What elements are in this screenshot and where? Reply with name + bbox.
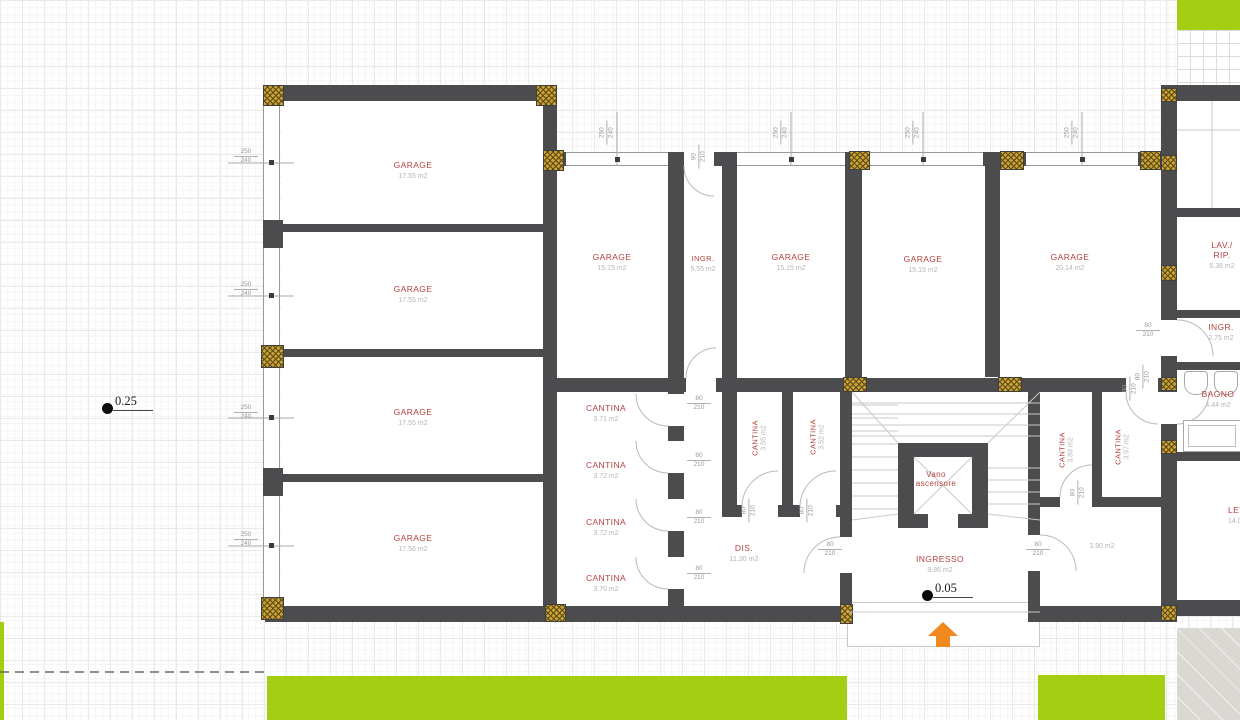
room-label-garage: GARAGE15.15 m2 — [904, 254, 943, 274]
room-label-lav-rip: LAV./RIP.5.38 m2 — [1209, 240, 1234, 270]
dimension-label: 80210 — [687, 452, 711, 469]
dimension-label: 80210 — [740, 499, 757, 523]
room-label-garage: GARAGE15.15 m2 — [772, 252, 811, 272]
room-label-ingresso: INGR.2.75 m2 — [1208, 322, 1234, 342]
dim-tick — [269, 293, 274, 298]
dimension-label: 80210 — [1134, 365, 1151, 389]
room-label-cantina: CANTINA3.89 m2 — [1058, 432, 1075, 468]
dim-tick — [1080, 157, 1085, 162]
room-label-ingresso: INGR.5.55 m2 — [690, 254, 715, 273]
room-label-bagno: BAGNO4.44 m2 — [1202, 389, 1235, 409]
room-label-cantina: CANTINA3.97 m2 — [1114, 429, 1131, 465]
dimension-label: 250240 — [904, 121, 921, 145]
level-marker-dot — [922, 590, 933, 601]
room-label-garage: GARAGE20.14 m2 — [1051, 252, 1090, 272]
dimension-label: 250240 — [234, 531, 258, 548]
room-label-letto: LETTO14.07 m2 — [1228, 505, 1240, 525]
linework-layer — [0, 0, 1240, 720]
door-arc — [636, 557, 668, 589]
dim-tick — [789, 157, 794, 162]
dim-tick — [269, 160, 274, 165]
entrance-arrow-icon — [928, 622, 958, 636]
room-label-garage: GARAGE17.55 m2 — [394, 407, 433, 427]
room-label-cantina: CANTINA3.72 m2 — [586, 517, 626, 537]
dim-tick — [269, 543, 274, 548]
dimension-label: 250240 — [234, 404, 258, 421]
room-label-garage: GARAGE17.55 m2 — [394, 284, 433, 304]
dimension-label: 80210 — [1026, 541, 1050, 558]
room-label-garage: GARAGE17.56 m2 — [394, 533, 433, 553]
dimension-label: 250240 — [234, 281, 258, 298]
dimension-label: 80210 — [687, 509, 711, 526]
dim-tick — [269, 415, 274, 420]
room-label-dis: DIS.11.30 m2 — [730, 543, 759, 563]
level-marker-dot — [102, 403, 113, 414]
dimension-label: 250240 — [234, 148, 258, 165]
dimension-label: 250240 — [1063, 121, 1080, 145]
door-arc — [636, 499, 668, 531]
dimension-label: 80210 — [687, 565, 711, 582]
door-arc — [684, 166, 714, 196]
room-label-cantina: CANTINA3.71 m2 — [586, 403, 626, 423]
dim-tick — [921, 157, 926, 162]
dimension-label: 250240 — [772, 121, 789, 145]
room-label-cantina: CANTINA3.52 m2 — [809, 419, 826, 455]
floor-plan: 250240 250240 250240 250240 250240 25024… — [0, 0, 1240, 720]
room-label-ingresso: INGRESSO9.86 m2 — [916, 554, 964, 574]
apartment-guide-lines — [1177, 101, 1240, 208]
dimension-label: 80210 — [1069, 481, 1086, 505]
room-label-cantina: CANTINA3.70 m2 — [586, 573, 626, 593]
dimension-label: 80210 — [798, 499, 815, 523]
level-marker-value: 0.25 — [113, 394, 153, 411]
room-label-storage: 3.90 m2 — [1089, 540, 1114, 550]
dimension-label: 80210 — [818, 541, 842, 558]
room-label-garage: GARAGE17.55 m2 — [394, 160, 433, 180]
room-label-cantina: CANTINA3.72 m2 — [586, 460, 626, 480]
level-marker-value: 0.05 — [933, 581, 973, 598]
room-label-garage: GARAGE15.15 m2 — [593, 252, 632, 272]
dimension-label: 80210 — [687, 395, 711, 412]
door-arc — [686, 348, 716, 378]
dimension-label: 90210 — [690, 145, 707, 169]
door-arc — [636, 394, 668, 426]
door-arc — [636, 441, 668, 473]
bathtub-icon — [1183, 420, 1240, 452]
dimension-label: 80210 — [1136, 322, 1160, 339]
room-label-elevator: Vanoascensore — [916, 470, 957, 488]
dimension-label: 250240 — [598, 121, 615, 145]
dim-tick — [615, 157, 620, 162]
entrance-arrow-icon — [936, 636, 950, 647]
room-label-cantina: CANTINA3.55 m2 — [751, 420, 768, 456]
